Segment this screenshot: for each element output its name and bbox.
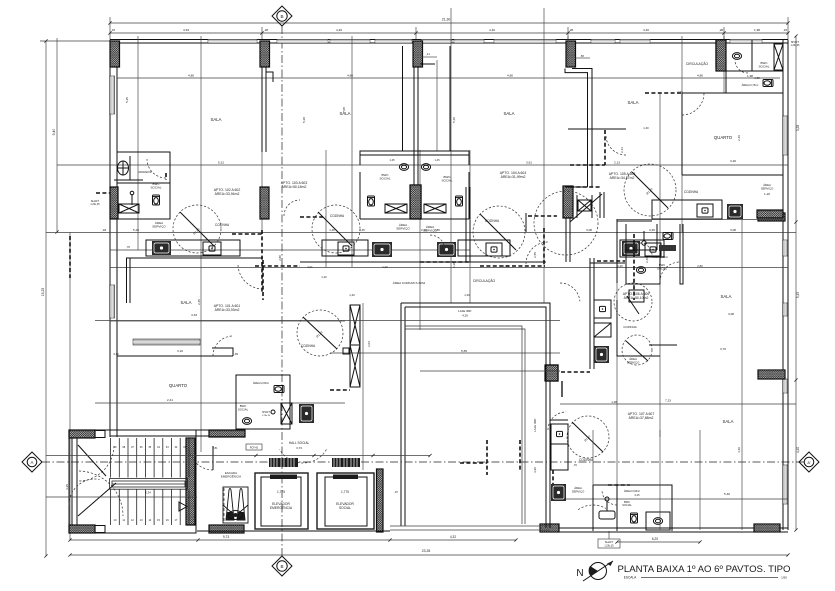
svg-text:4,40: 4,40: [336, 28, 342, 32]
svg-text:ÁREA=2,55m²: ÁREA=2,55m²: [652, 256, 668, 259]
svg-text:1,45: 1,45: [359, 228, 365, 232]
svg-text:SALA: SALA: [340, 111, 351, 116]
svg-text:1,98: 1,98: [754, 76, 760, 80]
svg-text:9,40: 9,40: [52, 129, 56, 136]
svg-text:CIRCULAÇÃO: CIRCULAÇÃO: [473, 278, 496, 283]
svg-text:3,10: 3,10: [113, 352, 119, 356]
svg-text:1,28: 1,28: [611, 400, 617, 404]
svg-text:3,70: 3,70: [720, 347, 726, 351]
svg-text:4,93: 4,93: [183, 28, 189, 32]
svg-text:COZINHA: COZINHA: [623, 325, 637, 329]
svg-text:1,20: 1,20: [321, 275, 327, 279]
svg-text:SALA: SALA: [504, 111, 515, 116]
svg-text:ÁREA=31,99m2: ÁREA=31,99m2: [501, 175, 526, 179]
svg-text:ÁREA=2,84m²: ÁREA=2,84m²: [253, 382, 269, 385]
svg-text:5,65: 5,65: [461, 349, 467, 353]
svg-text:HALL SOCIAL: HALL SOCIAL: [289, 441, 310, 445]
svg-text:,93: ,93: [102, 228, 107, 232]
svg-text:1,20: 1,20: [382, 265, 388, 269]
svg-text:SHAFT: SHAFT: [605, 540, 614, 544]
svg-text:,15: ,15: [111, 28, 116, 32]
svg-text:SOCIAL: SOCIAL: [238, 407, 249, 411]
svg-text:SERVIÇO: SERVIÇO: [152, 225, 166, 229]
svg-text:4,40: 4,40: [643, 28, 649, 32]
svg-text:5,40: 5,40: [724, 492, 730, 496]
svg-text:4,33: 4,33: [191, 313, 197, 317]
svg-text:ÁREA=33,93m2: ÁREA=33,93m2: [215, 308, 240, 312]
svg-text:SALA: SALA: [628, 100, 639, 105]
svg-text:1,45: 1,45: [389, 158, 395, 162]
svg-text:1,29x,35: 1,29x,35: [262, 415, 271, 417]
svg-text:3,08: 3,08: [730, 228, 736, 232]
svg-text:,70: ,70: [126, 245, 130, 249]
svg-text:3,08: 3,08: [586, 228, 592, 232]
svg-text:LAJE IMP.: LAJE IMP.: [533, 418, 537, 432]
svg-text:2,13: 2,13: [620, 147, 624, 153]
svg-text:3,20: 3,20: [730, 159, 736, 163]
svg-text:3,45: 3,45: [649, 228, 655, 232]
svg-text:3,96: 3,96: [533, 467, 537, 473]
svg-text:COZINHA: COZINHA: [215, 223, 230, 227]
svg-text:1,29x,35: 1,29x,35: [90, 203, 100, 206]
svg-text:2,88: 2,88: [278, 255, 282, 261]
svg-text:5,35: 5,35: [452, 117, 456, 123]
svg-text:4,80: 4,80: [347, 74, 353, 78]
svg-text:9,73: 9,73: [223, 535, 229, 539]
svg-text:EMERGÊNCIA: EMERGÊNCIA: [270, 505, 293, 510]
svg-text:1,26: 1,26: [329, 228, 335, 232]
svg-text:B: B: [280, 14, 283, 19]
svg-text:APARADOR: APARADOR: [138, 171, 152, 174]
svg-text:SALA: SALA: [721, 294, 732, 299]
svg-text:1/50: 1/50: [781, 576, 787, 580]
svg-text:3,25: 3,25: [65, 484, 69, 490]
svg-text:SHAFT: SHAFT: [262, 411, 270, 414]
svg-text:,28: ,28: [719, 28, 724, 32]
svg-text:3,10: 3,10: [177, 349, 183, 353]
svg-text:SERVIÇO: SERVIÇO: [761, 186, 774, 190]
svg-text:3,28: 3,28: [796, 125, 800, 131]
svg-text:COZINHA: COZINHA: [301, 344, 316, 348]
svg-text:SOCIAL: SOCIAL: [150, 186, 161, 190]
svg-text:3,08: 3,08: [728, 312, 734, 316]
svg-text:3,73: 3,73: [296, 446, 302, 450]
svg-text:2,46: 2,46: [645, 257, 649, 263]
svg-text:2,01: 2,01: [307, 265, 313, 269]
svg-text:SALA: SALA: [211, 117, 222, 122]
svg-text:2,03: 2,03: [367, 341, 371, 347]
svg-text:2,46: 2,46: [737, 135, 741, 141]
svg-text:5,28: 5,28: [302, 117, 306, 123]
svg-text:3,61: 3,61: [526, 161, 532, 165]
svg-text:LAJE IMP.: LAJE IMP.: [458, 309, 472, 313]
svg-text:5,25: 5,25: [125, 97, 129, 103]
svg-text:4,32: 4,32: [450, 535, 456, 539]
svg-text:1,20: 1,20: [617, 264, 623, 268]
svg-text:,41: ,41: [426, 52, 430, 56]
svg-text:4,40: 4,40: [796, 447, 800, 453]
svg-text:A: A: [31, 460, 34, 465]
svg-text:A': A': [807, 461, 811, 465]
svg-text:2,55: 2,55: [533, 252, 537, 258]
svg-text:SERVIÇO: SERVIÇO: [572, 489, 585, 493]
svg-text:1,45: 1,45: [434, 158, 440, 162]
svg-text:CIRCULAÇÃO: CIRCULAÇÃO: [686, 61, 709, 66]
svg-text:COZINHA: COZINHA: [330, 214, 345, 218]
svg-text:ÁREA COMUM=3,39h2: ÁREA COMUM=3,39h2: [393, 281, 426, 285]
svg-text:PLANTA BAIXA 1º AO 6º PAVTOS.: PLANTA BAIXA 1º AO 6º PAVTOS. TIPO: [617, 564, 790, 575]
svg-text:4,80: 4,80: [697, 74, 703, 78]
svg-text:21,30: 21,30: [442, 18, 451, 22]
svg-text:5,25: 5,25: [133, 228, 139, 232]
svg-text:N: N: [576, 568, 583, 579]
svg-text:1,98: 1,98: [747, 74, 753, 78]
svg-text:2,34: 2,34: [145, 491, 151, 495]
svg-text:,93: ,93: [234, 352, 238, 356]
svg-text:1,29x,35: 1,29x,35: [604, 545, 614, 548]
svg-text:SOCIAL: SOCIAL: [758, 65, 769, 69]
svg-text:2,80: 2,80: [697, 264, 703, 268]
svg-text:2,41: 2,41: [167, 398, 173, 402]
svg-text:ÁREA=3,64m²: ÁREA=3,64m²: [624, 490, 640, 493]
svg-text:1,775: 1,775: [341, 490, 349, 494]
svg-text:SERVIÇO: SERVIÇO: [396, 227, 410, 231]
svg-text:1,29x,35: 1,29x,35: [791, 45, 801, 47]
svg-text:QUARTO: QUARTO: [169, 383, 188, 388]
svg-text:,70: ,70: [573, 463, 577, 467]
svg-text:2,45: 2,45: [197, 299, 201, 305]
svg-text:2,81: 2,81: [212, 446, 218, 450]
svg-text:B: B: [280, 564, 283, 569]
svg-text:ÁREA=2,76m²: ÁREA=2,76m²: [742, 83, 759, 87]
svg-text:1,98: 1,98: [754, 28, 760, 32]
svg-text:SOCIAL: SOCIAL: [339, 506, 351, 510]
svg-text:ÁREA=50,18m2: ÁREA=50,18m2: [282, 185, 307, 189]
svg-text:2,13: 2,13: [614, 161, 620, 165]
svg-text:SOCIAL: SOCIAL: [441, 179, 452, 183]
svg-text:4,80: 4,80: [188, 74, 194, 78]
svg-text:5,45: 5,45: [796, 292, 800, 298]
svg-text:1,775: 1,775: [277, 490, 285, 494]
svg-text:4,40: 4,40: [737, 447, 741, 453]
svg-text:15,25: 15,25: [41, 288, 45, 297]
svg-text:SALA: SALA: [181, 300, 192, 305]
svg-text:2,88: 2,88: [434, 228, 440, 232]
svg-text:SOCIAL: SOCIAL: [622, 503, 632, 507]
svg-text:,15: ,15: [783, 28, 788, 32]
svg-text:5,31: 5,31: [218, 161, 224, 165]
svg-text:ÁREA=33,94m2: ÁREA=33,94m2: [215, 192, 240, 196]
svg-text:,28: ,28: [569, 28, 574, 32]
svg-text:,97: ,97: [394, 490, 398, 494]
svg-text:SALA: SALA: [723, 419, 734, 424]
svg-text:SOCIAL: SOCIAL: [379, 177, 390, 181]
svg-text:PCF-60: PCF-60: [250, 447, 259, 450]
svg-text:4,80: 4,80: [507, 74, 513, 78]
svg-text:SHAFT: SHAFT: [791, 41, 800, 44]
svg-text:7,23: 7,23: [665, 399, 671, 403]
svg-text:COZINHA: COZINHA: [684, 190, 699, 194]
svg-text:ESCALA: ESCALA: [624, 576, 637, 580]
svg-text:4,40: 4,40: [489, 28, 495, 32]
svg-text:,58: ,58: [580, 54, 584, 58]
svg-text:23,28: 23,28: [422, 549, 431, 553]
svg-text:4,26: 4,26: [462, 314, 468, 318]
svg-text:1,40: 1,40: [643, 126, 649, 130]
svg-text:1,20: 1,20: [349, 293, 355, 297]
svg-text:QUARTO: QUARTO: [714, 135, 733, 140]
svg-text:1,20: 1,20: [464, 293, 470, 297]
svg-text:ÁREA=34,57m2: ÁREA=34,57m2: [610, 176, 635, 180]
svg-text:6,20: 6,20: [652, 537, 658, 541]
svg-text:,28: ,28: [264, 28, 269, 32]
svg-text:2,00: 2,00: [677, 90, 683, 94]
svg-text:EMERGÊNCIA: EMERGÊNCIA: [221, 474, 241, 479]
svg-text:ÁREA=37,88m2: ÁREA=37,88m2: [629, 416, 654, 420]
svg-text:2,25: 2,25: [634, 493, 640, 497]
svg-text:COZINHA: COZINHA: [579, 458, 594, 462]
svg-text:1,20: 1,20: [764, 192, 770, 196]
svg-text:SOCIAL: SOCIAL: [657, 266, 668, 270]
